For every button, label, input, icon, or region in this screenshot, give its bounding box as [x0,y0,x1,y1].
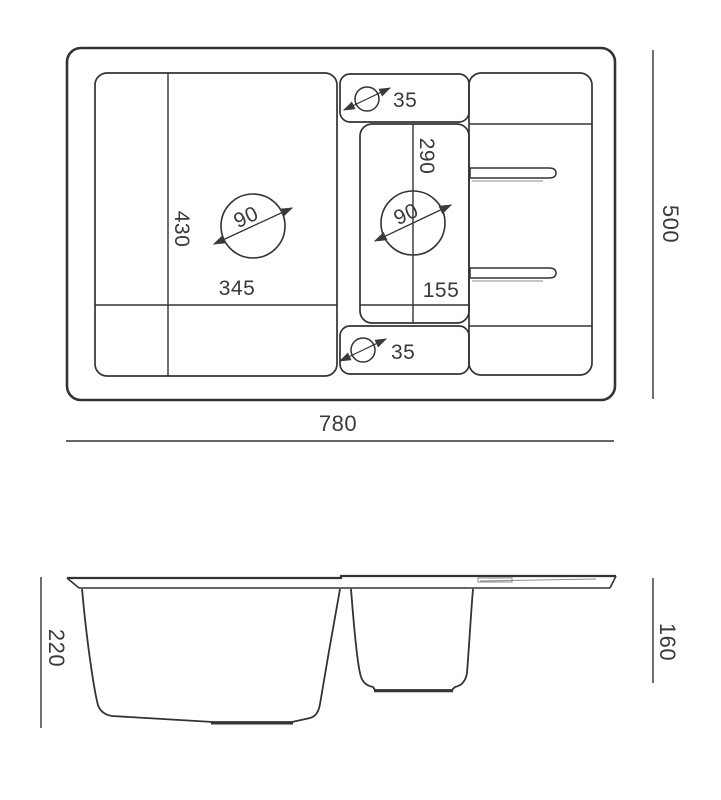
label-overall-depth: 500 [658,205,683,243]
label-tap-hole-bottom: 35 [391,341,415,364]
slab-left-bevel [67,578,79,588]
top-view [66,48,653,441]
drawing-svg: 35 35 430 345 90 290 155 90 780 500 220 … [0,0,721,800]
slab-right-bevel [610,576,616,588]
drainboard-surface-line [480,579,596,581]
main-bowl-outline [95,73,337,376]
sink-outer-edge [67,48,615,400]
sink-technical-drawing: 35 35 430 345 90 290 155 90 780 500 220 … [0,0,721,800]
label-drainer-end-depth: 160 [655,623,680,661]
label-main-bowl-depth: 430 [170,211,193,248]
small-bowl-profile [351,589,473,690]
main-bowl-profile [82,589,340,722]
dimension-labels: 35 35 430 345 90 290 155 90 780 500 220 … [44,89,683,667]
label-small-drain-diameter: 90 [390,199,422,230]
label-tap-hole-top: 35 [393,89,417,112]
label-small-bowl-width: 155 [423,279,460,302]
label-main-bowl-width: 345 [219,277,256,300]
label-small-bowl-depth: 290 [415,138,438,175]
drainer-groove-2 [470,268,556,278]
side-view [41,576,653,728]
label-overall-width: 780 [319,411,357,436]
slab-top-edge [67,576,616,578]
drainer-groove-1 [470,168,556,178]
label-main-drain-diameter: 90 [230,202,262,233]
drainboard-outline [469,73,592,375]
label-main-bowl-total-depth: 220 [44,629,69,667]
